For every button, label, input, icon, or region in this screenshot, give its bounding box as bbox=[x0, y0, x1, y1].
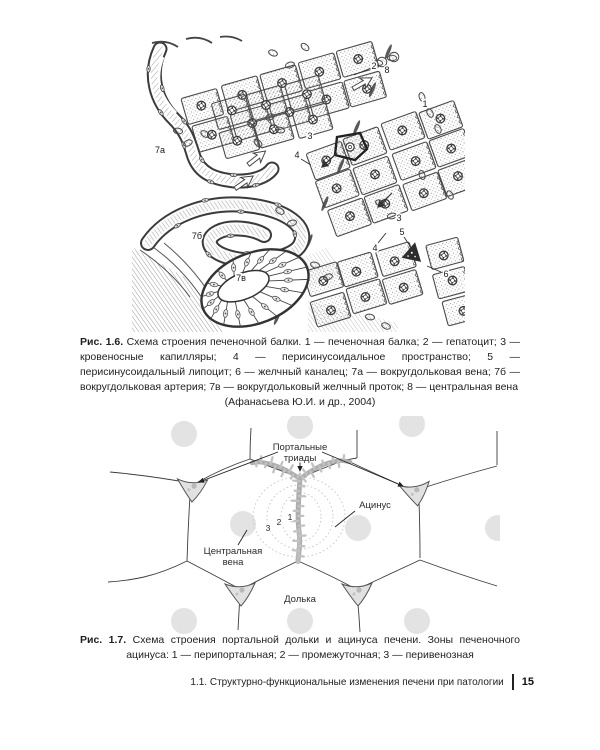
figure-1-6-caption-text: Схема строения печеночной балки. 1 — печ… bbox=[80, 336, 520, 393]
fig16-label-6: 6 bbox=[443, 269, 448, 279]
fig16-label-3b: 3 bbox=[396, 213, 401, 223]
fig16-label-7v: 7в bbox=[236, 273, 246, 283]
figure-1-7-caption-text: Схема строения портальной дольки и ацину… bbox=[126, 634, 520, 661]
footer-divider bbox=[512, 674, 514, 690]
fig17-label-portal-triads-line2: триады bbox=[284, 453, 317, 464]
fig16-label-7a: 7а bbox=[155, 145, 165, 155]
footer-section-title: 1.1. Структурно-функциональные изменения… bbox=[190, 677, 503, 688]
fig16-label-1: 1 bbox=[422, 99, 427, 109]
fig17-portal-triad bbox=[399, 481, 431, 507]
fig17-zone-2: 2 bbox=[277, 517, 282, 527]
page-footer: 1.1. Структурно-функциональные изменения… bbox=[190, 674, 534, 690]
fig17-zone-1: 1 bbox=[288, 512, 293, 522]
fig16-label-3: 3 bbox=[307, 131, 312, 141]
fig16-label-5: 5 bbox=[399, 227, 404, 237]
figure-1-6-caption-credit: (Афанасьева Ю.И. и др., 2004) bbox=[80, 395, 520, 410]
fig17-zone-3: 3 bbox=[266, 523, 271, 533]
fig17-label-lobule-vein-line2: вена bbox=[223, 557, 244, 568]
book-page: 1 2 8 3 4 3 5 4 6 7а 7б 7в Рис. 1.6. Схе… bbox=[0, 0, 600, 750]
fig17-label-central-vein-line1: Центральная bbox=[204, 546, 263, 557]
fig16-label-2: 2 bbox=[371, 61, 376, 71]
figure-1-7-lobule-acinus-diagram: Портальные триады Ацинус Центральная вен… bbox=[108, 416, 500, 634]
fig16-beam-bottom-right bbox=[425, 237, 465, 327]
figure-1-7-caption: Рис. 1.7. Схема строения портальной доль… bbox=[80, 633, 520, 663]
fig17-central-vein-circles bbox=[171, 416, 500, 634]
figure-1-6-caption-label: Рис. 1.6. bbox=[80, 336, 123, 348]
figure-1-6-hepatic-beam-diagram: 1 2 8 3 4 3 5 4 6 7а 7б 7в bbox=[130, 35, 465, 332]
fig17-label-portal-triads-line1: Портальные bbox=[273, 442, 328, 453]
fig16-label-4: 4 bbox=[294, 150, 299, 160]
fig17-label-acinus: Ацинус bbox=[359, 500, 391, 511]
fig16-label-4b: 4 bbox=[372, 243, 377, 253]
fig17-portal-triad bbox=[176, 478, 208, 503]
fig16-label-8: 8 bbox=[384, 65, 389, 75]
fig17-portal-triad bbox=[342, 583, 372, 606]
page-number: 15 bbox=[522, 676, 534, 688]
figure-1-6-caption: Рис. 1.6. Схема строения печеночной балк… bbox=[80, 335, 520, 410]
fig17-portal-tree bbox=[252, 455, 350, 564]
fig17-portal-triad bbox=[225, 583, 255, 606]
fig17-label-lobule: Долька bbox=[284, 594, 316, 605]
fig16-label-7b: 7б bbox=[192, 231, 202, 241]
figure-1-7-caption-label: Рис. 1.7. bbox=[80, 634, 126, 646]
